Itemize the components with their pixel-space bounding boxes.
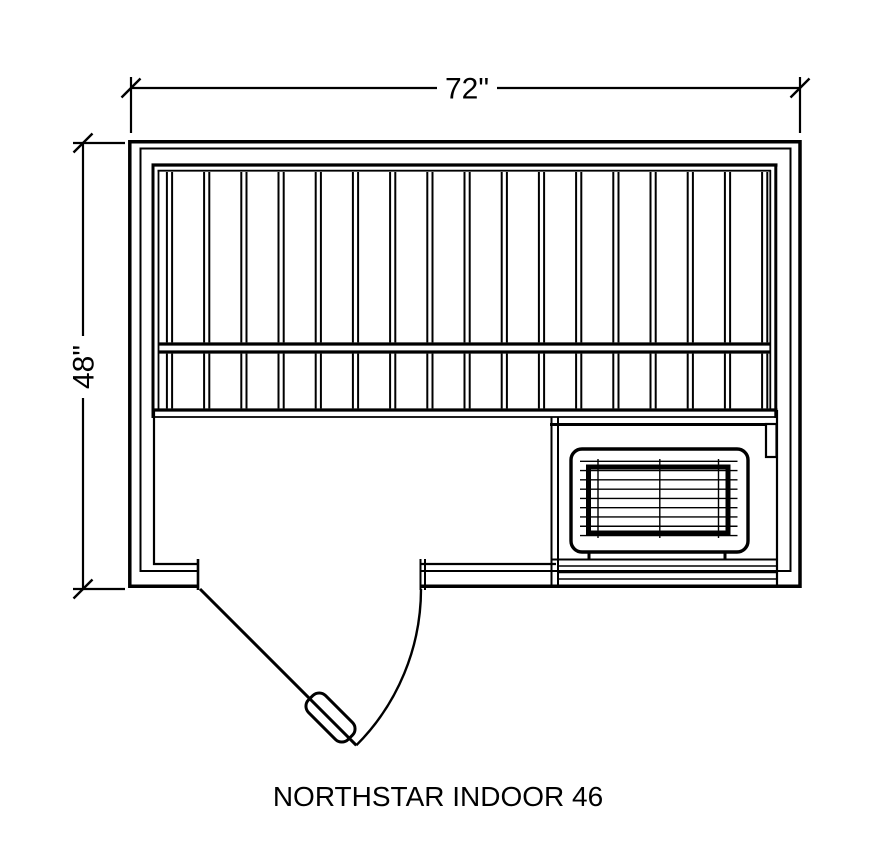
plan-title: NORTHSTAR INDOOR 46 (273, 781, 603, 812)
door (198, 559, 425, 746)
interior-panel-left (154, 410, 198, 564)
heater-grille-frame (589, 467, 729, 533)
bench (152, 164, 778, 419)
width-dimension-label: 72" (445, 73, 489, 106)
dimension-height: 48" (68, 134, 126, 599)
sauna-floorplan-page: 72" 48" (0, 0, 879, 860)
floorplan-drawing: 72" 48" (0, 0, 879, 860)
heater-grille-lines (580, 459, 738, 538)
dimension-width: 72" (122, 73, 810, 134)
door-leaf (200, 589, 356, 745)
heater (550, 410, 778, 585)
heater-hearth-lines (558, 566, 777, 579)
wall-vent (766, 424, 777, 457)
door-swing-arc (356, 589, 421, 745)
bench-slats (167, 172, 767, 408)
height-dimension-label: 48" (68, 345, 101, 389)
